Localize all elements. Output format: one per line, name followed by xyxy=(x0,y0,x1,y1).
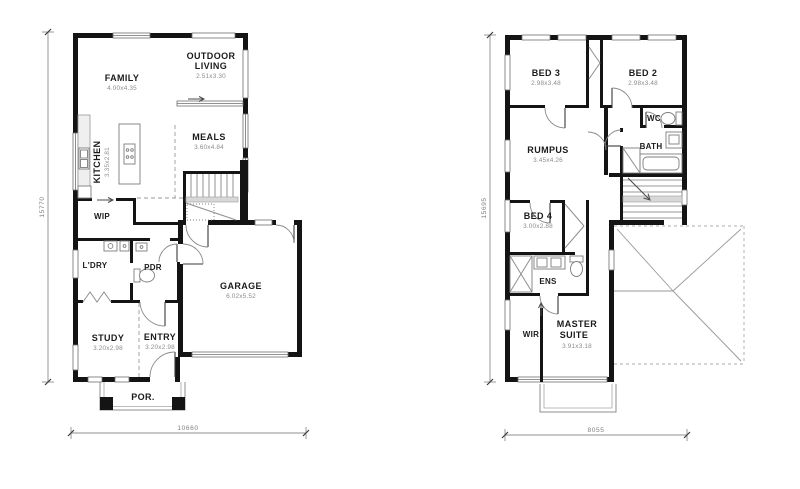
ens-toilet xyxy=(571,262,583,277)
room-label-porch: POR. xyxy=(131,392,155,402)
ground-width-dimension: 10660 xyxy=(177,425,198,432)
room-label-bath: BATH xyxy=(640,142,663,151)
room-size-bed4: 3.00x2.88 xyxy=(523,223,553,230)
room-label-outdoor-living-2: LIVING xyxy=(195,61,227,71)
room-size-outdoor-living: 2.51x3.30 xyxy=(196,73,226,80)
room-size-family: 4.00x4.35 xyxy=(107,85,137,92)
upper-height-dimension: 15695 xyxy=(481,197,488,218)
room-label-bed3: BED 3 xyxy=(532,68,561,78)
room-label-garage: GARAGE xyxy=(220,281,262,291)
room-size-bed3: 2.98x3.48 xyxy=(531,80,561,87)
room-label-ens: ENS xyxy=(539,277,557,286)
garage-roof-outline xyxy=(614,226,744,364)
room-size-bed2: 2.98x3.48 xyxy=(628,80,658,87)
room-size-study: 3.20x2.98 xyxy=(93,345,123,352)
master-window-bay xyxy=(540,384,616,412)
washer xyxy=(104,241,117,251)
ground-stairs xyxy=(186,174,238,220)
upper-floor-plan: 15695 8055 BED 3 2.98x3.48 BED 2 2.98x3.… xyxy=(481,32,744,441)
room-label-wc: WC xyxy=(647,114,661,123)
upper-width-dimension: 8055 xyxy=(587,427,604,434)
floor-plan-drawing: 15770 10660 FAMILY 4.00x4.35 OUTDOOR LIV… xyxy=(0,0,800,489)
floor-plan-sheet: 15770 10660 FAMILY 4.00x4.35 OUTDOOR LIV… xyxy=(0,0,800,489)
room-size-master: 3.91x3.18 xyxy=(562,343,592,350)
room-size-kitchen: 3.35x2.81 xyxy=(104,147,111,177)
room-size-garage: 6.02x5.52 xyxy=(226,293,256,300)
ground-height-dimension: 15770 xyxy=(39,196,46,217)
room-label-ldry: L'DRY xyxy=(83,261,108,270)
upper-doors xyxy=(530,47,662,314)
room-label-rumpus: RUMPUS xyxy=(527,145,568,155)
ground-arrows xyxy=(97,97,204,203)
wc-toilet-tank xyxy=(676,112,682,125)
wc-toilet xyxy=(661,113,675,125)
room-size-meals: 3.60x4.84 xyxy=(194,144,224,151)
ground-floor-plan: 15770 10660 FAMILY 4.00x4.35 OUTDOOR LIV… xyxy=(39,29,309,439)
room-label-wir: WIR xyxy=(523,330,539,339)
fridge-space xyxy=(78,186,91,198)
room-size-entry: 3.20x2.98 xyxy=(145,344,175,351)
room-label-master-2: SUITE xyxy=(560,330,589,340)
room-size-rumpus: 3.45x4.26 xyxy=(533,157,563,164)
room-label-bed2: BED 2 xyxy=(629,68,658,78)
room-label-pdr: PDR xyxy=(144,263,162,272)
room-label-wip: WIP xyxy=(94,212,110,221)
room-label-kitchen: KITCHEN xyxy=(92,141,102,184)
room-label-bed4: BED 4 xyxy=(524,211,553,221)
porch-post xyxy=(100,397,113,410)
room-label-study: STUDY xyxy=(92,333,125,343)
bath-vanity xyxy=(666,132,682,148)
room-label-outdoor-living-1: OUTDOOR xyxy=(187,51,236,61)
room-label-family: FAMILY xyxy=(105,73,140,83)
laundry-trough xyxy=(120,241,129,251)
kitchen-island xyxy=(119,124,140,184)
porch-post xyxy=(172,397,185,410)
room-label-master-1: MASTER xyxy=(557,319,598,329)
pdr-basin xyxy=(136,243,147,251)
room-label-meals: MEALS xyxy=(192,132,226,142)
upper-stairs xyxy=(623,178,682,218)
room-label-entry: ENTRY xyxy=(144,332,176,342)
